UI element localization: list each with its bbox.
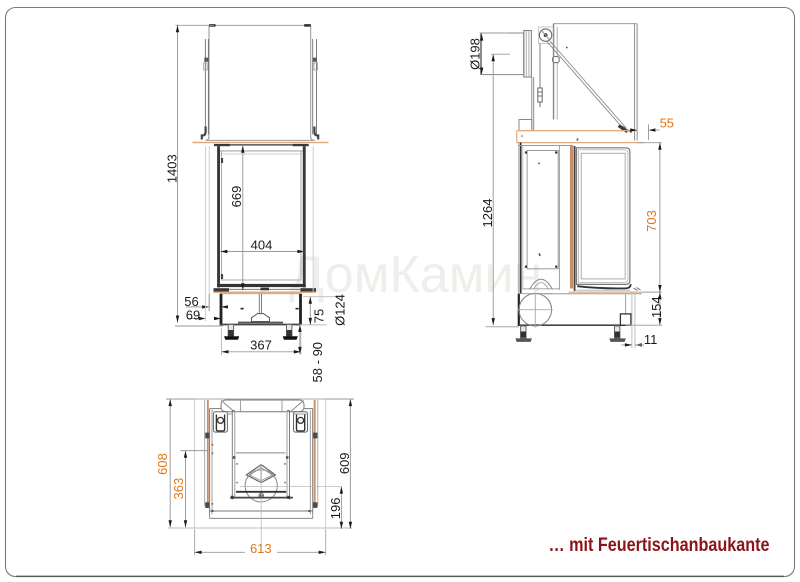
svg-text:608: 608	[155, 453, 170, 475]
svg-text:367: 367	[250, 337, 272, 352]
svg-text:154: 154	[649, 296, 664, 318]
svg-text:609: 609	[337, 452, 352, 474]
svg-text:669: 669	[229, 186, 244, 208]
svg-text:Ø198: Ø198	[467, 38, 482, 70]
svg-text:Ø124: Ø124	[333, 294, 348, 326]
svg-text:363: 363	[171, 478, 186, 500]
svg-text:11: 11	[644, 332, 658, 347]
svg-text:404: 404	[251, 237, 273, 252]
svg-text:58 - 90: 58 - 90	[310, 342, 325, 382]
svg-text:55: 55	[660, 115, 674, 130]
svg-text:75: 75	[312, 309, 327, 323]
svg-text:1403: 1403	[164, 154, 179, 183]
svg-text:703: 703	[644, 210, 659, 232]
svg-text:613: 613	[250, 541, 272, 556]
svg-text:ДомКамин: ДомКамин	[289, 246, 542, 304]
svg-text:… mit Feuertischanbaukante: … mit Feuertischanbaukante	[549, 535, 770, 556]
svg-text:196: 196	[328, 498, 343, 520]
svg-text:1264: 1264	[480, 199, 495, 228]
svg-text:69: 69	[186, 308, 200, 323]
